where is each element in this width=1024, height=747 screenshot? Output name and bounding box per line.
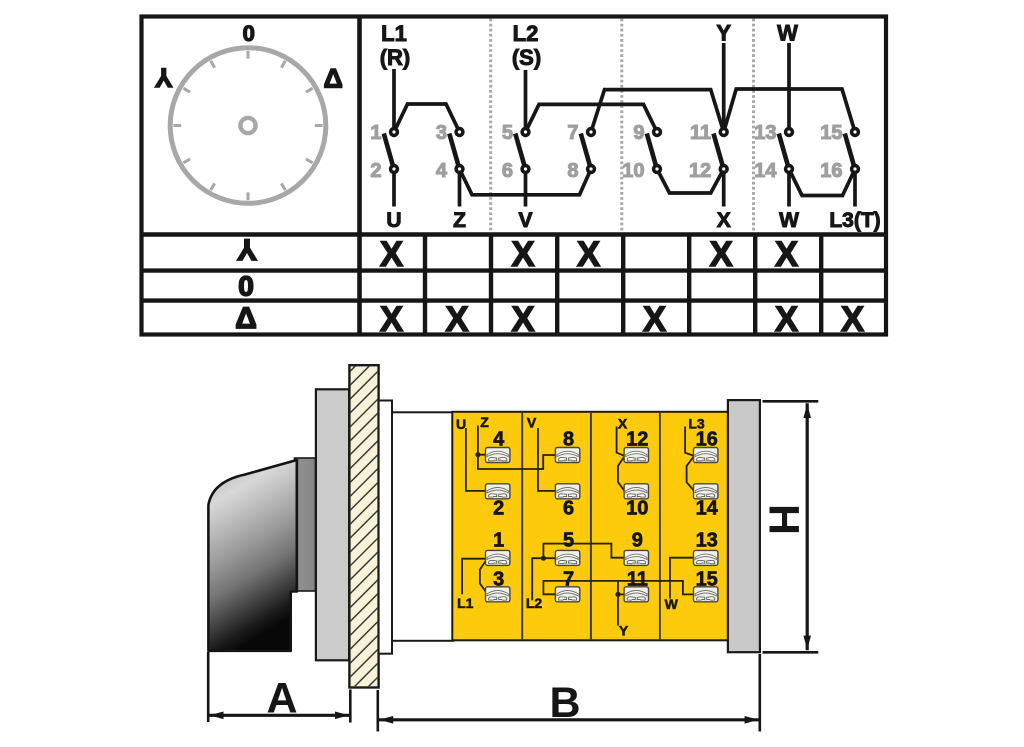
svg-text:L2: L2 xyxy=(526,595,543,611)
svg-text:X: X xyxy=(577,235,601,274)
svg-text:5: 5 xyxy=(563,529,574,551)
svg-text:16: 16 xyxy=(820,160,842,182)
svg-text:6: 6 xyxy=(563,498,574,520)
svg-text:(S): (S) xyxy=(512,45,541,70)
svg-text:14: 14 xyxy=(754,160,777,182)
svg-text:3: 3 xyxy=(493,568,504,590)
svg-text:W: W xyxy=(665,596,679,612)
svg-text:0: 0 xyxy=(238,271,254,302)
svg-text:Z: Z xyxy=(480,414,489,430)
svg-text:X: X xyxy=(380,235,404,274)
svg-text:L1: L1 xyxy=(381,21,407,46)
svg-text:15: 15 xyxy=(696,568,718,590)
svg-text:4: 4 xyxy=(493,428,505,450)
svg-text:0: 0 xyxy=(243,21,255,46)
svg-text:X: X xyxy=(775,300,799,339)
svg-text:U: U xyxy=(456,416,466,432)
svg-text:15: 15 xyxy=(820,122,842,144)
svg-text:Y: Y xyxy=(716,21,731,46)
svg-text:2: 2 xyxy=(493,498,504,520)
svg-text:X: X xyxy=(511,300,535,339)
svg-text:(R): (R) xyxy=(380,45,411,70)
svg-text:Δ: Δ xyxy=(235,302,257,335)
svg-text:11: 11 xyxy=(690,122,711,144)
svg-text:4: 4 xyxy=(436,160,448,182)
svg-text:X: X xyxy=(380,300,404,339)
svg-text:W: W xyxy=(777,21,798,46)
svg-text:5: 5 xyxy=(502,122,513,144)
svg-text:14: 14 xyxy=(696,498,719,520)
svg-text:X: X xyxy=(445,300,469,339)
svg-text:L2: L2 xyxy=(513,21,539,46)
svg-text:Y: Y xyxy=(155,62,173,92)
svg-text:12: 12 xyxy=(689,160,711,182)
svg-text:L1: L1 xyxy=(457,595,474,611)
svg-text:2: 2 xyxy=(370,160,381,182)
svg-text:16: 16 xyxy=(696,428,718,450)
svg-text:3: 3 xyxy=(436,122,447,144)
svg-text:6: 6 xyxy=(502,160,513,182)
svg-text:9: 9 xyxy=(632,529,643,551)
svg-text:X: X xyxy=(775,235,799,274)
svg-text:8: 8 xyxy=(563,428,574,450)
svg-text:Δ: Δ xyxy=(323,64,342,94)
svg-text:X: X xyxy=(841,300,865,339)
svg-text:10: 10 xyxy=(626,498,648,520)
svg-text:X: X xyxy=(710,235,734,274)
svg-text:13: 13 xyxy=(754,122,776,144)
svg-text:1: 1 xyxy=(493,529,504,551)
svg-text:X: X xyxy=(511,235,535,274)
svg-text:W: W xyxy=(779,209,799,232)
svg-text:X: X xyxy=(643,300,667,339)
svg-text:A: A xyxy=(266,675,297,723)
svg-text:7: 7 xyxy=(563,568,574,590)
svg-text:H: H xyxy=(760,504,808,535)
svg-text:U: U xyxy=(386,209,401,232)
svg-text:13: 13 xyxy=(696,529,718,551)
svg-text:7: 7 xyxy=(567,122,578,144)
svg-text:Z: Z xyxy=(453,209,466,232)
svg-text:X: X xyxy=(717,209,731,232)
svg-text:10: 10 xyxy=(622,160,644,182)
svg-text:1: 1 xyxy=(370,122,381,144)
svg-text:B: B xyxy=(549,679,580,727)
svg-text:9: 9 xyxy=(633,122,644,144)
svg-text:L3(T): L3(T) xyxy=(829,209,880,232)
svg-text:V: V xyxy=(527,415,537,431)
svg-text:12: 12 xyxy=(626,428,648,450)
svg-text:Y: Y xyxy=(619,623,629,639)
svg-text:Y: Y xyxy=(237,233,257,266)
svg-text:8: 8 xyxy=(567,160,578,182)
svg-text:V: V xyxy=(518,209,532,232)
svg-text:11: 11 xyxy=(627,568,648,590)
